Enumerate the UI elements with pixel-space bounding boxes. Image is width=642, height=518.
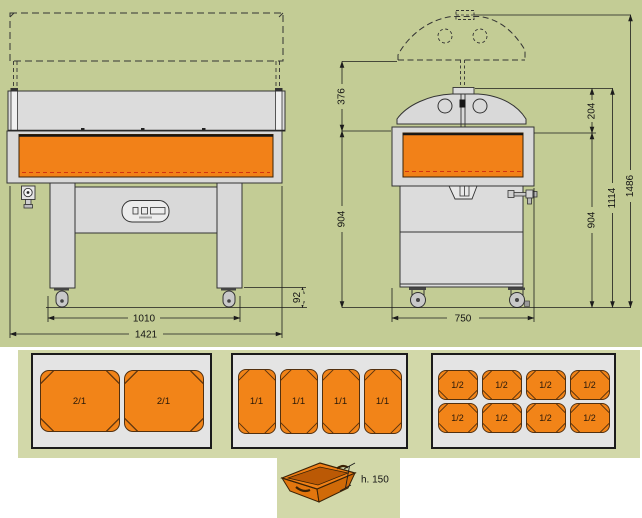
gn-pan: 1/2 [438, 370, 478, 400]
canopy-lamp-dashed [473, 29, 487, 43]
gn-pan: 2/1 [40, 370, 120, 432]
dim-base-height-left: 904 [337, 210, 348, 227]
pan-config-2-1: 2/1 2/1 [31, 353, 212, 449]
dim-depth: 750 [455, 314, 472, 325]
technical-drawing-sheet: 92 1010 1421 [0, 0, 642, 518]
base-frame-side [400, 186, 523, 287]
counter-top-front [7, 131, 282, 183]
gn-pan: 1/2 [570, 403, 610, 433]
drain-valve [22, 186, 36, 208]
gn-pan: 2/1 [124, 370, 204, 432]
base-frame-front [50, 183, 242, 288]
gn-pan: 1/2 [482, 403, 522, 433]
dim-canopy-height: 204 [587, 102, 598, 119]
caster-side-left [409, 288, 426, 308]
side-view-drawing: 376 904 204 904 1114 1486 750 [337, 11, 637, 325]
dim-closed-height: 1114 [607, 187, 618, 208]
canopy-lamp-dashed [438, 29, 452, 43]
gn-pan: 1/2 [482, 370, 522, 400]
gn-pan: 1/2 [526, 403, 566, 433]
control-panel [122, 201, 169, 223]
gn-pan: 1/1 [238, 369, 276, 434]
gn-pan: 1/1 [364, 369, 402, 434]
pan-3d-detail: h. 150 [277, 458, 400, 518]
dim-base-height-right: 904 [587, 211, 598, 228]
caster-brake [525, 301, 530, 307]
front-view-drawing: 92 1010 1421 [7, 13, 307, 341]
caster-front-left [54, 288, 69, 307]
display-basin-side [403, 133, 523, 177]
drawing-area: 92 1010 1421 [0, 0, 642, 347]
pan-3d-svg: h. 150 [277, 458, 400, 518]
pan-config-1-1: 1/1 1/1 1/1 1/1 [231, 353, 408, 449]
display-basin-front [19, 135, 273, 178]
dim-canopy-lift: 376 [337, 88, 348, 105]
counter-drawing-svg: 92 1010 1421 [0, 0, 642, 347]
gn-pan: 1/2 [438, 403, 478, 433]
control-panel-label-strip [139, 217, 152, 219]
gn-pan: 1/1 [280, 369, 318, 434]
canopy-closed-side [397, 88, 526, 128]
pan-config-1-2: 1/2 1/2 1/2 1/2 1/2 1/2 1/2 1/2 [431, 353, 616, 449]
caster-front-right [221, 288, 236, 307]
counter-top-side [392, 127, 534, 186]
gn-pan: 1/1 [322, 369, 360, 434]
dim-leg-span: 1010 [133, 314, 156, 325]
canopy-raised-side-dashed [398, 11, 525, 88]
canopy-raised-dashed [10, 13, 283, 91]
pan-height-label: h. 150 [361, 475, 389, 486]
dim-open-height: 1486 [625, 174, 636, 197]
dim-overall-width: 1421 [135, 330, 158, 341]
dim-caster-height: 92 [292, 292, 303, 304]
gn-pan: 1/2 [526, 370, 566, 400]
glass-display-band [8, 88, 285, 131]
gn-pan: 1/2 [570, 370, 610, 400]
pan-configuration-section: 2/1 2/1 1/1 1/1 1/1 1/1 1/2 1/2 1/2 1/2 … [0, 347, 642, 518]
caster-side-right [508, 288, 530, 308]
